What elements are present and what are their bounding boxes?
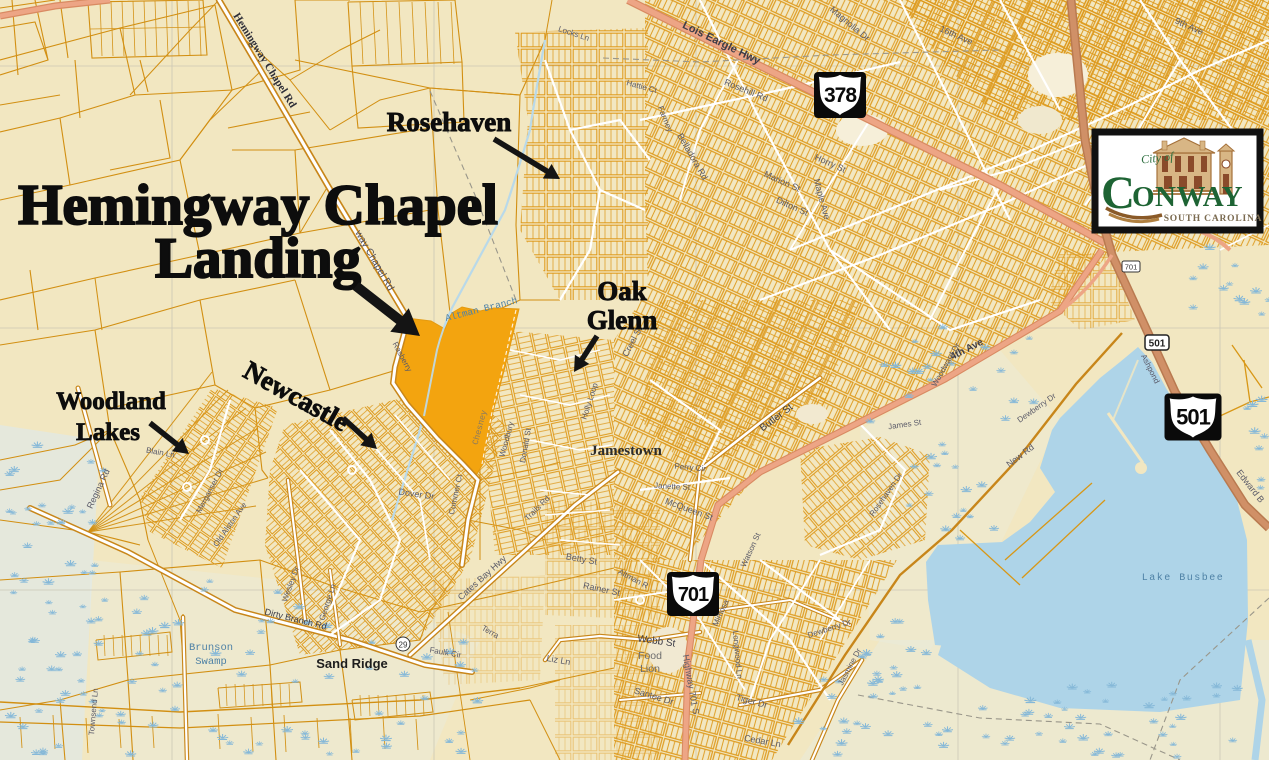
svg-text:Landing: Landing (155, 227, 361, 290)
svg-text:701: 701 (678, 584, 709, 606)
svg-text:Rosehaven: Rosehaven (387, 107, 512, 137)
svg-text:Lakes: Lakes (76, 419, 140, 446)
svg-text:Jamestown: Jamestown (590, 443, 662, 459)
svg-text:Lake Busbee: Lake Busbee (1142, 572, 1225, 584)
svg-text:Brunson: Brunson (189, 642, 233, 654)
svg-text:501: 501 (1149, 339, 1166, 350)
svg-text:701: 701 (1125, 263, 1138, 272)
svg-text:378: 378 (824, 84, 857, 107)
svg-text:501: 501 (1176, 404, 1210, 429)
svg-text:ONWAY: ONWAY (1132, 181, 1243, 213)
svg-text:Janette St: Janette St (654, 481, 691, 492)
svg-text:C: C (1101, 167, 1135, 219)
svg-text:Glenn: Glenn (587, 305, 658, 335)
svg-text:29: 29 (399, 641, 408, 650)
svg-text:SOUTH CAROLINA: SOUTH CAROLINA (1164, 214, 1263, 224)
svg-text:Oak: Oak (597, 276, 647, 306)
svg-text:Food: Food (638, 650, 662, 662)
svg-text:Woodland: Woodland (56, 388, 166, 415)
svg-text:Sand Ridge: Sand Ridge (316, 656, 388, 671)
svg-text:Lion: Lion (640, 663, 660, 675)
svg-text:Swamp: Swamp (195, 656, 227, 668)
